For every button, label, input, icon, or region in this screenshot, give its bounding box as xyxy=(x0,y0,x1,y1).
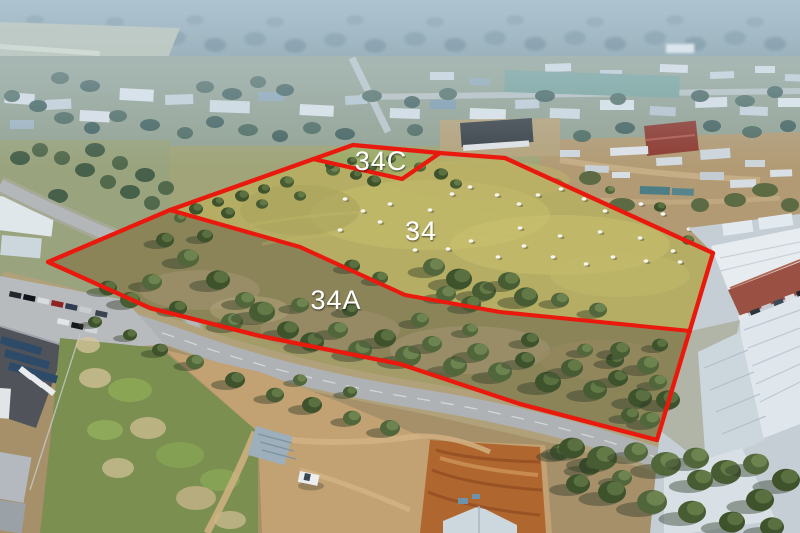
aerial-photo-canvas: 34 34A 34C xyxy=(0,0,800,533)
atmospheric-haze xyxy=(0,0,800,168)
lot-34a-label: 34A xyxy=(310,285,361,315)
lot-34-label: 34 xyxy=(405,216,437,246)
aerial-photo: 34 34A 34C xyxy=(0,0,800,533)
lot-34c-label: 34C xyxy=(355,146,408,176)
storage-container xyxy=(0,500,26,533)
